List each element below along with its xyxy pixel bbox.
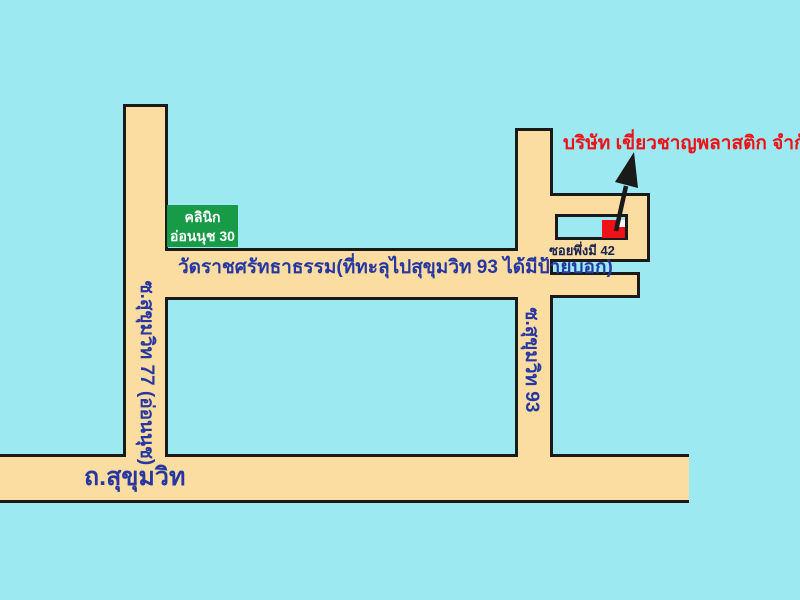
clinic-sign-line1: คลินิก — [167, 208, 238, 227]
soi-sukhumvit-93-label: ซ.สุขุมวิท 93 — [519, 308, 543, 413]
clinic-sign-line2: อ่อนนุช 30 — [167, 227, 238, 246]
map-canvas: คลินิก อ่อนนุช 30 บริษัท เขี่ยวชาญพลาสติ… — [0, 0, 800, 600]
wat-road-label: วัดราชศรัทธาธรรม(ที่ทะลุไปสุขุมวิท 93 ได… — [178, 256, 613, 280]
company-name-label: บริษัท เขี่ยวชาญพลาสติก จำกัด — [563, 132, 800, 156]
clinic-sign: คลินิก อ่อนนุช 30 — [167, 205, 238, 247]
arrow-icon — [595, 148, 645, 238]
junction-patch — [518, 454, 550, 458]
soi-onnut-77-label: ซ.สุขุมวิท 77 (อ่อนนุช) — [134, 281, 158, 466]
sukhumvit-road-label: ถ.สุขุมวิท — [84, 462, 185, 493]
soi-phuengmi-42-label: ซอยพึ่งมี 42 — [549, 243, 615, 259]
